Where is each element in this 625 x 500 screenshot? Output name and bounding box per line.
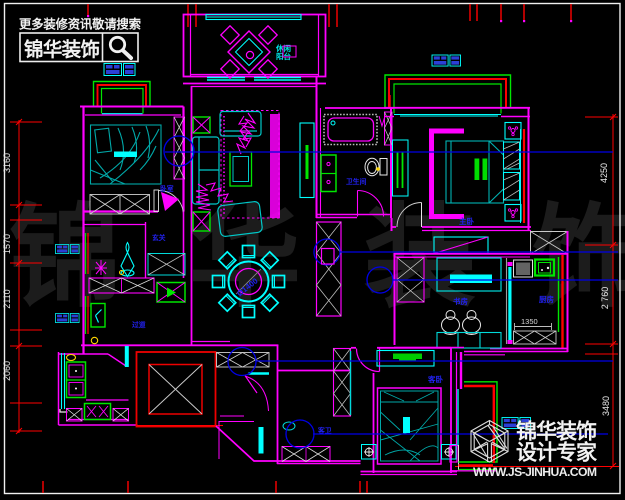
svg-text:卫生间: 卫生间 (346, 177, 367, 186)
svg-text:1570: 1570 (2, 234, 12, 254)
svg-text:过道: 过道 (132, 320, 146, 329)
svg-text:1350: 1350 (521, 317, 538, 326)
svg-text:客卧: 客卧 (427, 374, 443, 384)
svg-text:书房: 书房 (453, 296, 468, 306)
svg-text:设计专家: 设计专家 (516, 441, 598, 465)
svg-text:WWW.JS-JINHUA.COM: WWW.JS-JINHUA.COM (473, 465, 597, 479)
svg-text:厨房: 厨房 (539, 294, 554, 304)
svg-text:卧室: 卧室 (160, 184, 174, 193)
svg-text:锦华装饰: 锦华装饰 (24, 38, 100, 61)
svg-text:阳台: 阳台 (276, 51, 291, 61)
svg-text:3480: 3480 (601, 396, 611, 416)
svg-text:主卧: 主卧 (459, 216, 474, 226)
svg-text:玄关: 玄关 (152, 233, 166, 242)
svg-text:2110: 2110 (2, 289, 12, 308)
svg-text:2 760: 2 760 (600, 287, 610, 310)
svg-text:4250: 4250 (599, 163, 609, 183)
svg-text:锦华装饰: 锦华装饰 (516, 420, 597, 444)
svg-text:3160: 3160 (2, 153, 12, 173)
svg-text:更多装修资讯敬请搜索: 更多装修资讯敬请搜索 (19, 17, 142, 32)
svg-text:2060: 2060 (2, 361, 12, 381)
